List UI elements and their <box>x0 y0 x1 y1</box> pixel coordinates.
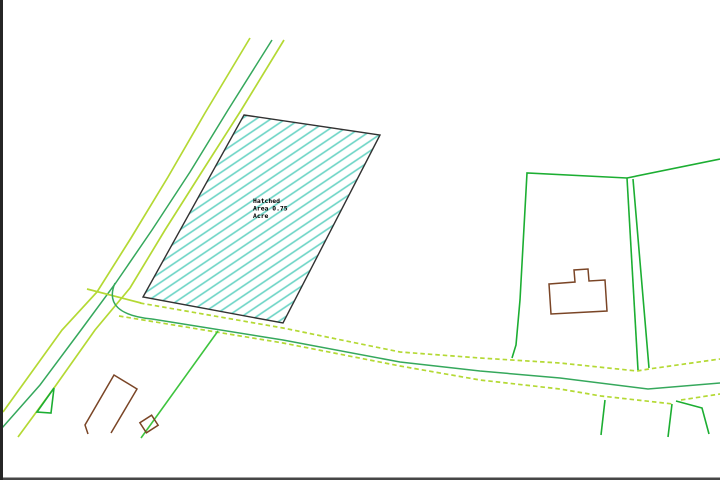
right-field-building <box>549 269 607 314</box>
left-border <box>0 0 3 480</box>
hatch-label-line-3: Acre <box>253 212 269 220</box>
site-plan-svg: Hatched Area 0.75 Acre <box>0 0 720 480</box>
roadside-triangle <box>37 388 54 413</box>
north-east-boundary <box>627 159 720 178</box>
right-field-boundary <box>512 173 627 358</box>
east-lane-bottom-edge <box>119 316 720 404</box>
branch-boundary-line <box>141 331 218 438</box>
south-boundary-segment-2 <box>668 404 672 437</box>
right-field-double-line-a <box>627 178 638 370</box>
south-boundary-segment-3 <box>676 401 709 434</box>
right-field-double-line-b <box>633 179 649 368</box>
bottom-left-building <box>85 375 137 434</box>
south-boundary-segment-1 <box>601 400 605 435</box>
site-plan-canvas: Hatched Area 0.75 Acre <box>0 0 720 480</box>
